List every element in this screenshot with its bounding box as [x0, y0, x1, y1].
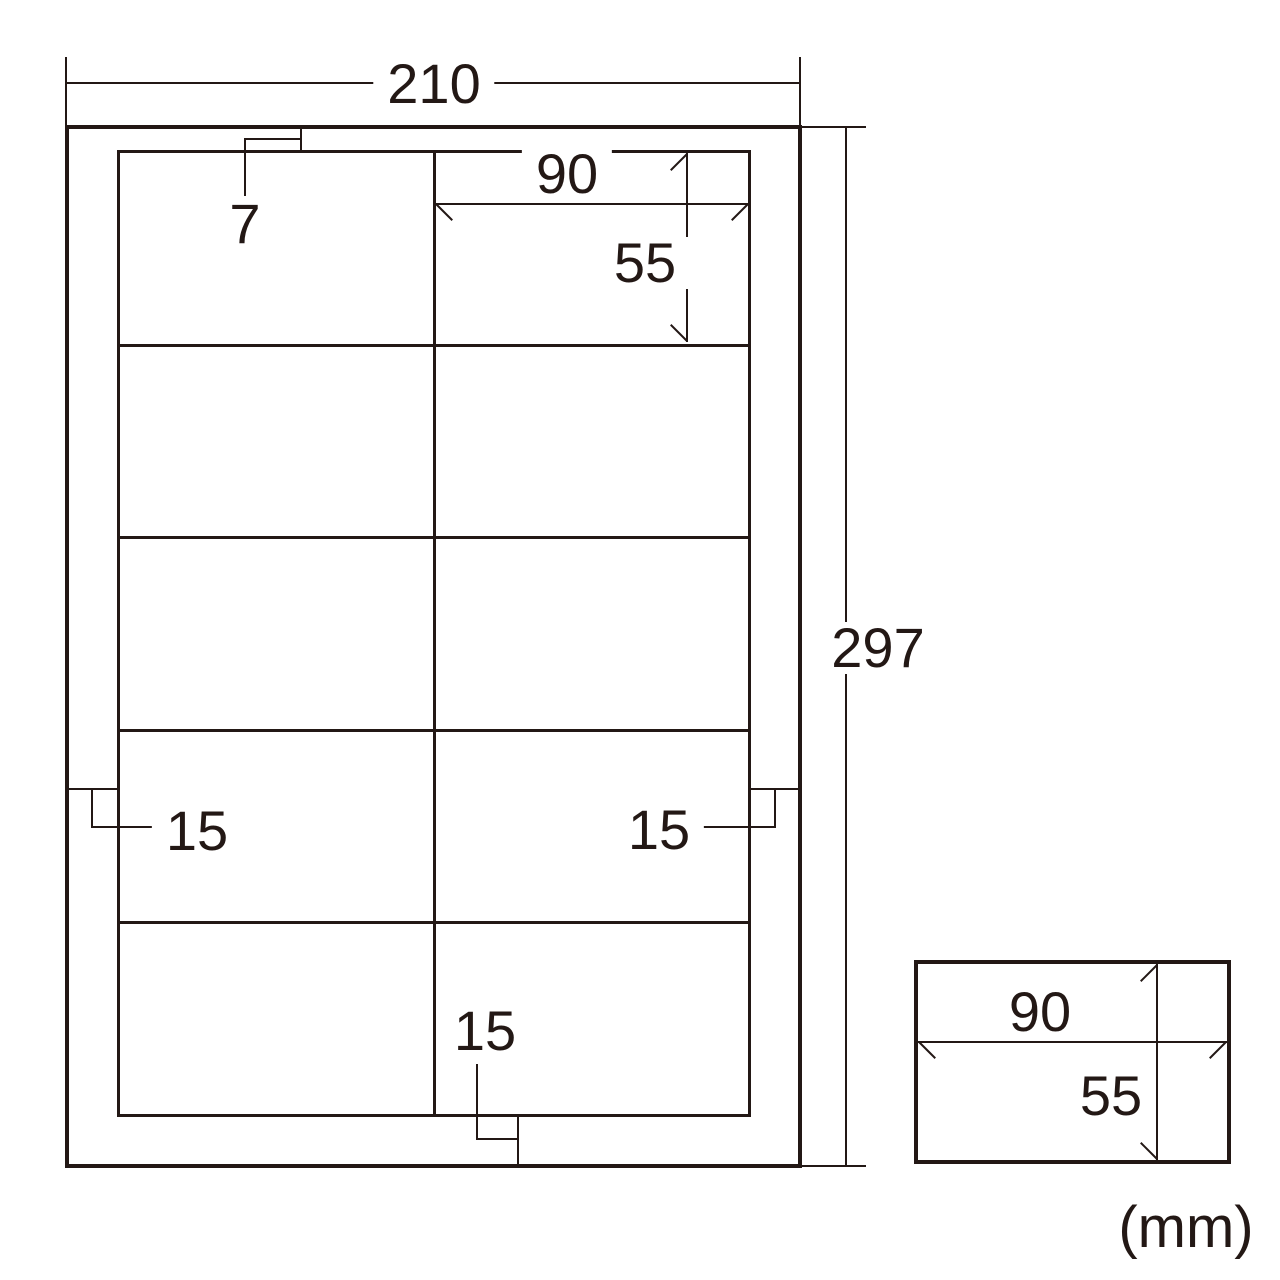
callout-right-margin-label: 15 [614, 804, 704, 856]
callout-right-margin-leader-h [700, 826, 776, 828]
grid-column-line [433, 153, 436, 1114]
callout-bottom-margin-label: 15 [440, 1005, 530, 1057]
callout-right-margin-tick [751, 788, 802, 790]
dim-sheet-width-ext-left [65, 57, 67, 127]
callout-bottom-margin-leader-h [476, 1138, 519, 1140]
dim-detail-width-label: 90 [995, 986, 1085, 1038]
label-sheet-dimension-diagram: 210 297 7 15 15 15 90 55 90 55 (mm) [0, 0, 1280, 1280]
callout-bottom-margin-leader-v [476, 1064, 478, 1140]
callout-top-margin-label: 7 [215, 198, 274, 250]
callout-right-margin-leader-v [774, 788, 776, 828]
dim-detail-height-line [1156, 964, 1158, 1160]
dim-sheet-width-ext-right [799, 57, 801, 127]
dim-sheet-width-label: 210 [373, 58, 494, 110]
callout-top-margin-leader-v [244, 138, 246, 196]
dim-cell-height-label: 55 [600, 237, 690, 289]
callout-left-margin-label: 15 [152, 805, 242, 857]
dim-sheet-height-ext-top [801, 126, 866, 128]
unit-label: (mm) [1114, 1202, 1257, 1254]
callout-bottom-margin-tick [517, 1117, 519, 1167]
dim-sheet-height-label: 297 [817, 622, 938, 674]
dim-detail-height-label: 55 [1066, 1070, 1156, 1122]
callout-top-margin-leader-h [244, 138, 302, 140]
dim-sheet-height-ext-bottom [801, 1165, 866, 1167]
dim-detail-width-line [918, 1041, 1227, 1043]
callout-left-margin-leader-v [91, 788, 93, 828]
dim-cell-width-label: 90 [522, 148, 612, 200]
